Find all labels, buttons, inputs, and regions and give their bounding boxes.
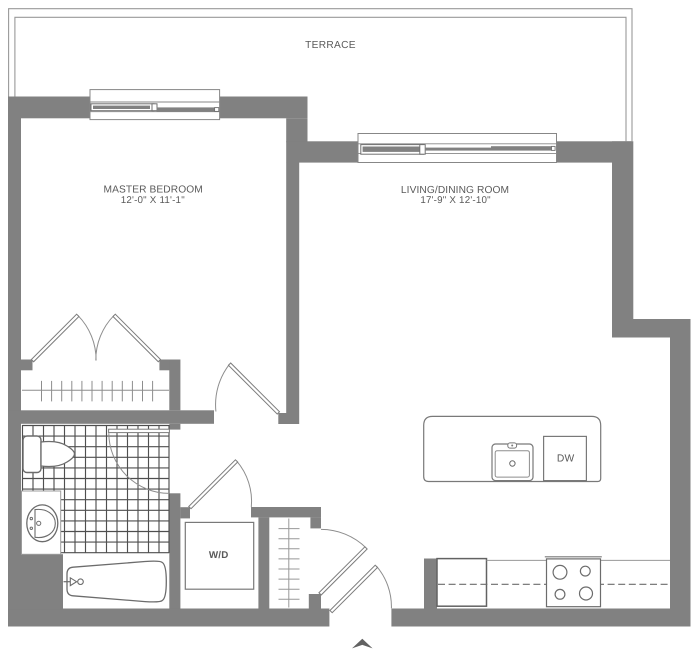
svg-text:MASTER BEDROOM: MASTER BEDROOM xyxy=(104,184,203,195)
svg-text:W/D: W/D xyxy=(209,550,229,561)
svg-text:TERRACE: TERRACE xyxy=(305,40,356,51)
svg-text:12'-0" X 11'-1": 12'-0" X 11'-1" xyxy=(121,195,185,206)
svg-text:17'-9" X 12'-10": 17'-9" X 12'-10" xyxy=(420,195,491,206)
svg-text:DW: DW xyxy=(557,453,575,464)
